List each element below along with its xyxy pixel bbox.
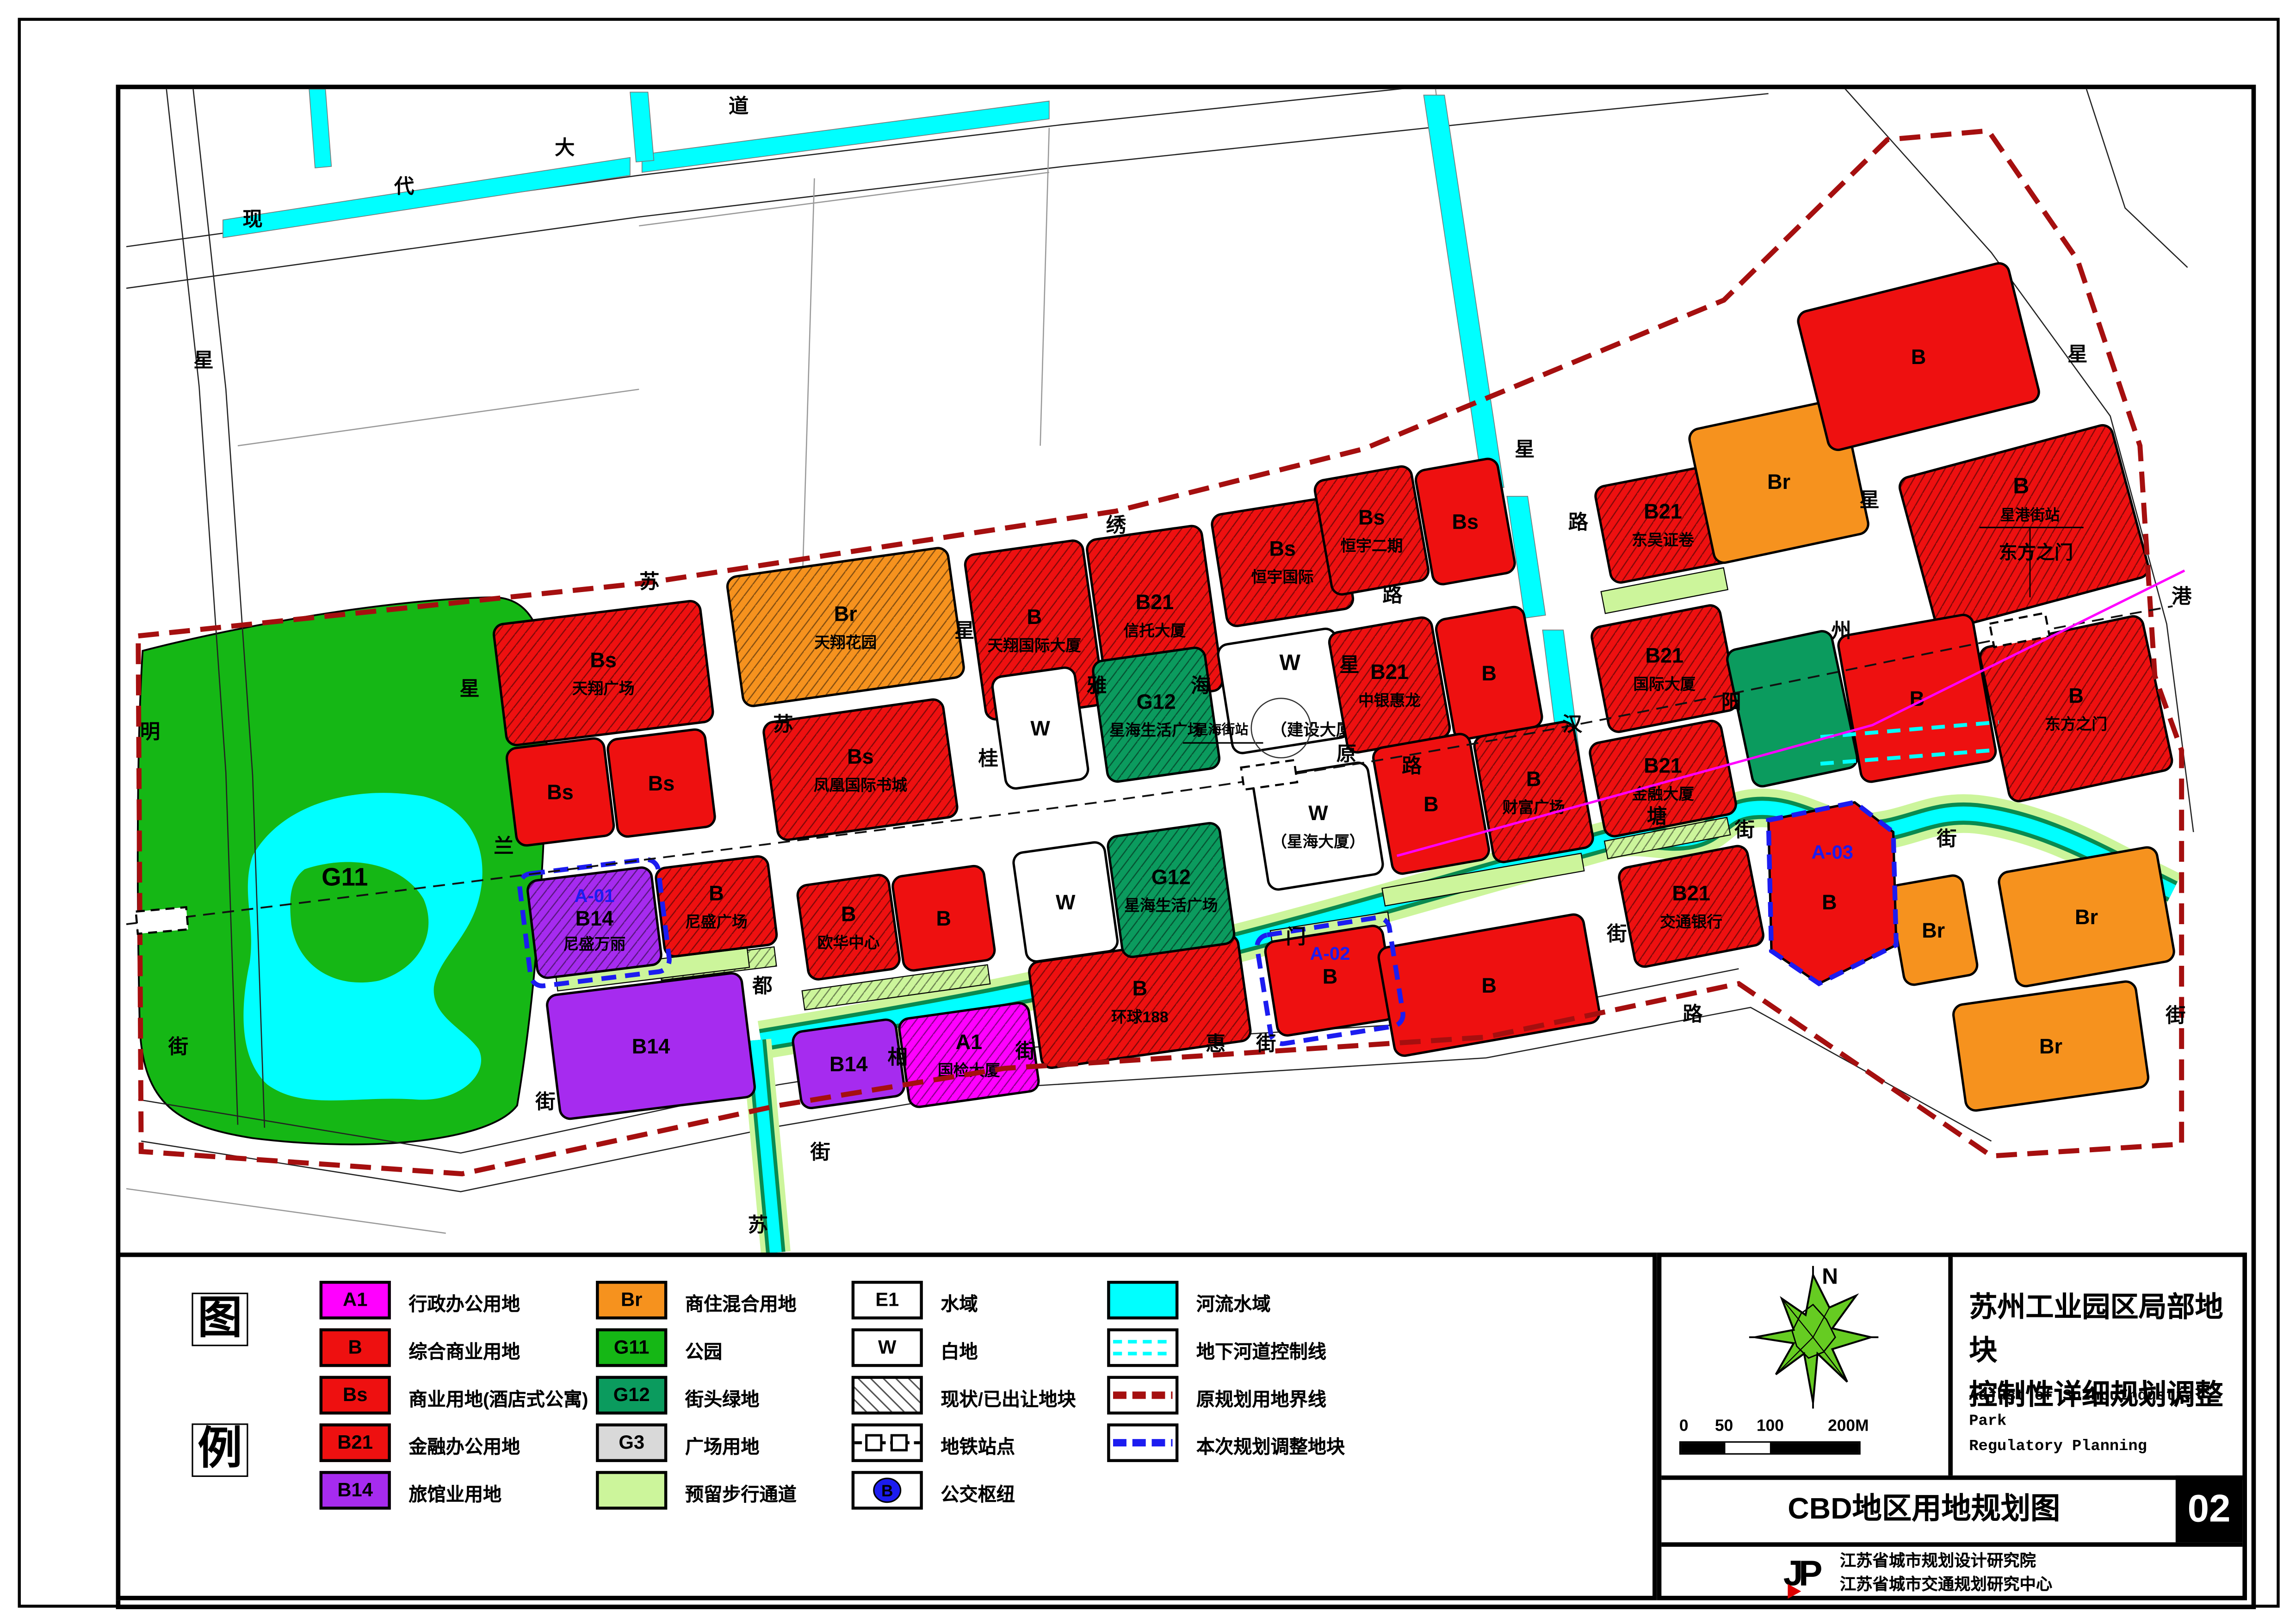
svg-text:Bs: Bs [547, 780, 574, 804]
parcel-label: B [1911, 345, 1926, 369]
sheet-title-en: Adjust of SuzhouIndustial Park Regulator… [1969, 1385, 2244, 1460]
parcel-b21-jiaotong [1617, 844, 1765, 968]
svg-text:W: W [1056, 890, 1076, 914]
parcel-tianxiang-plaza [493, 600, 714, 746]
svg-text:星海街站: 星海街站 [1195, 722, 1249, 737]
road-name-char: 街 [168, 1036, 188, 1058]
parcel-label: B [1481, 974, 1496, 997]
road-name-char: 星 [193, 349, 213, 371]
parcel-g12-lower [1107, 822, 1235, 958]
svg-text:Br: Br [2075, 905, 2098, 929]
svg-text:B: B [936, 907, 951, 930]
svg-text:东方之门: 东方之门 [1999, 542, 2073, 563]
road-name-char: 路 [1402, 755, 1422, 777]
road-name-char: 港 [2172, 586, 2192, 608]
svg-text:B: B [2013, 473, 2029, 498]
svg-text:A1: A1 [956, 1030, 983, 1054]
road-edge [126, 89, 1724, 247]
svg-text:天翔花园: 天翔花园 [814, 634, 877, 652]
svg-text:B: B [709, 882, 724, 905]
svg-text:东方之门: 东方之门 [2045, 715, 2107, 733]
svg-text:B21: B21 [1672, 882, 1710, 905]
north-compass: N [1743, 1260, 1884, 1422]
parcel-label: B14 [632, 1035, 670, 1058]
road-name-char: 州 [1831, 620, 1851, 642]
divider [1661, 1476, 2242, 1480]
svg-text:尼盛广场: 尼盛广场 [685, 913, 748, 931]
svg-text:Br: Br [2039, 1035, 2062, 1058]
svg-text:B: B [1027, 605, 1042, 629]
road-name-char: 明 [140, 721, 160, 743]
sheet-name: CBD地区用地规划图 [1788, 1484, 2060, 1527]
svg-text:B: B [841, 902, 856, 926]
svg-text:Bs: Bs [1452, 510, 1479, 534]
title-block: N 0 50 100 200M 苏州工业园区局部地块 控制性详细规划调整 Adj… [1657, 1253, 2247, 1600]
svg-text:天翔国际大厦: 天翔国际大厦 [988, 637, 1082, 655]
svg-text:东吴证卷: 东吴证卷 [1632, 531, 1694, 549]
parcel-label: Bs [648, 772, 675, 795]
svg-text:G12: G12 [1151, 865, 1191, 889]
svg-text:天翔广场: 天翔广场 [572, 680, 635, 698]
parcel-bs-hengyu2 [1313, 465, 1430, 596]
road-name-char: 雅 [1087, 675, 1107, 697]
parcel-label: Br [2039, 1035, 2062, 1058]
svg-text:Bs: Bs [1358, 506, 1385, 529]
road-name-char: 街 [535, 1091, 555, 1113]
road-name-char: 绣 [1106, 514, 1126, 537]
road-name-char: 星 [954, 620, 974, 642]
svg-text:B14: B14 [632, 1035, 670, 1058]
svg-text:B21: B21 [1646, 644, 1684, 667]
parcel-label: Bs [547, 780, 574, 804]
svg-text:欧华中心: 欧华中心 [817, 934, 880, 951]
river [630, 92, 654, 162]
river [223, 158, 630, 238]
metro-station [136, 907, 188, 934]
river [642, 101, 1049, 172]
svg-text:B: B [881, 1482, 893, 1500]
parcel-label: B [1481, 661, 1496, 685]
svg-text:星港街站: 星港街站 [2000, 506, 2060, 523]
road-name-char: 街 [1734, 819, 1755, 841]
svg-text:B: B [1423, 792, 1438, 816]
road-name-char: 都 [752, 975, 772, 997]
svg-text:B21: B21 [1644, 500, 1682, 523]
parcel-label: Bs [1452, 510, 1479, 534]
road-name-char: 路 [1568, 512, 1589, 534]
road-name-char: 路 [1683, 1003, 1703, 1025]
svg-text:财富广场: 财富广场 [1503, 798, 1565, 816]
jp-logo: JP [1783, 1554, 1818, 1596]
svg-text:B: B [2068, 684, 2083, 707]
svg-text:B: B [1481, 661, 1496, 685]
planning-sheet: Bs天翔广场BsBsA-01B14尼盛万丽B尼盛广场B14Br天翔花园Bs凤凰国… [0, 0, 2296, 1624]
svg-text:Bs: Bs [648, 772, 675, 795]
road-edge [803, 178, 815, 579]
svg-text:环球188: 环球188 [1111, 1008, 1169, 1026]
svg-text:Br: Br [1767, 470, 1790, 494]
divider [1661, 1542, 2242, 1547]
road-name-char: 街 [1256, 1033, 1276, 1055]
svg-text:交通银行: 交通银行 [1660, 913, 1722, 931]
parcel-g12-upper [1092, 647, 1220, 783]
legend-panel: 图 例 A1行政办公用地B综合商业用地Bs商业用地(酒店式公寓)B21金融办公用… [116, 1253, 1657, 1600]
svg-text:尼盛万丽: 尼盛万丽 [563, 936, 625, 953]
road-edge [2086, 89, 2187, 267]
road-name-char: 原 [1337, 743, 1356, 766]
svg-text:A-01: A-01 [574, 885, 614, 906]
road-name-char: 街 [1936, 828, 1956, 850]
road-edge [126, 1189, 446, 1233]
svg-text:星海生活广场: 星海生活广场 [1124, 897, 1218, 914]
road-name-char: 星 [2067, 344, 2087, 366]
road-name-char: 街 [1606, 923, 1627, 945]
parcel-br-tianxiang-garden [726, 547, 965, 707]
road-edge [1040, 128, 1049, 445]
road-name-char: 大 [555, 137, 575, 159]
parcel-b-ouhua [796, 874, 901, 981]
road-name-char: 苏 [639, 571, 659, 593]
road-edge [639, 173, 1049, 226]
svg-text:B: B [1481, 974, 1496, 997]
svg-text:Bs: Bs [847, 745, 874, 768]
svg-text:B21: B21 [1136, 590, 1174, 614]
road-name-char: 门 [1286, 926, 1306, 948]
road-name-char: 星 [1339, 654, 1359, 676]
svg-text:B21: B21 [1370, 660, 1409, 684]
svg-text:Br: Br [1922, 919, 1945, 942]
divider [1948, 1257, 1953, 1476]
parcel-label: W [1056, 890, 1076, 914]
road-name-char: 苏 [773, 713, 793, 735]
svg-text:B: B [1911, 345, 1926, 369]
svg-text:B: B [1526, 767, 1541, 790]
parcel-b21-guoji [1590, 604, 1739, 734]
parcel-label: Br [1767, 470, 1790, 494]
road-edge [238, 389, 639, 446]
road-name-char: 星 [1859, 489, 1879, 511]
river [1423, 95, 1504, 490]
sheet-number: 02 [2176, 1476, 2243, 1543]
river [309, 89, 331, 168]
parcel-label: B14 [829, 1052, 868, 1076]
parcel-label: W [1030, 716, 1050, 740]
road-name-char: 阳 [1721, 691, 1741, 713]
legend-title: 图 例 [192, 1293, 248, 1554]
road-name-char: 惠 [1206, 1033, 1225, 1055]
parcel-label: B [936, 907, 951, 930]
svg-text:A-02: A-02 [1310, 943, 1350, 964]
svg-text:恒宇国际: 恒宇国际 [1251, 568, 1314, 586]
parcel-label: Br [2075, 905, 2098, 929]
svg-text:星海生活广场: 星海生活广场 [1109, 722, 1203, 739]
road-name-char: 街 [810, 1142, 830, 1164]
svg-text:恒宇二期: 恒宇二期 [1341, 537, 1403, 555]
road-name-char: 街 [1015, 1040, 1035, 1062]
road-name-char: 相 [888, 1046, 908, 1068]
parcel-label: Br [1922, 919, 1945, 942]
svg-text:W: W [1308, 801, 1328, 825]
svg-text:Br: Br [834, 602, 857, 626]
svg-text:B: B [1323, 965, 1337, 988]
road-name-char: 海 [1191, 675, 1211, 697]
svg-text:W: W [1030, 716, 1050, 740]
road-name-char: 塘 [1647, 806, 1667, 828]
svg-text:信托大厦: 信托大厦 [1124, 622, 1186, 640]
svg-text:（星海大厦）: （星海大厦） [1271, 833, 1365, 851]
organizations: 江苏省城市规划设计研究院 江苏省城市交通规划研究中心 [1840, 1551, 2052, 1599]
road-name-char: 兰 [494, 835, 514, 858]
svg-text:N: N [1822, 1264, 1838, 1289]
svg-text:B14: B14 [576, 907, 613, 930]
svg-text:W: W [1280, 650, 1301, 675]
road-name-char: 现 [242, 208, 262, 230]
svg-text:B: B [1822, 890, 1837, 914]
svg-text:凤凰国际书城: 凤凰国际书城 [814, 777, 908, 794]
svg-text:B14: B14 [829, 1052, 868, 1076]
svg-text:中银惠龙: 中银惠龙 [1358, 692, 1421, 710]
road-name-char: 星 [1515, 438, 1535, 461]
scale-bar: 0 50 100 200M [1679, 1420, 1873, 1459]
svg-text:G12: G12 [1137, 690, 1176, 713]
road-name-char: 汉 [1562, 713, 1583, 735]
svg-text:Bs: Bs [590, 648, 616, 672]
park-label: G11 [322, 863, 368, 891]
parcel-b-caifu [1473, 720, 1595, 864]
zone-label-a03: A-03 [1812, 841, 1854, 863]
svg-text:B: B [1133, 976, 1147, 1000]
parcel-label: B [1423, 792, 1438, 816]
road-name-char: 桂 [978, 747, 998, 770]
road-name-char: 路 [1382, 584, 1403, 606]
road-name-char: 苏 [748, 1214, 768, 1236]
svg-text:国际大厦: 国际大厦 [1633, 676, 1696, 693]
svg-text:Bs: Bs [1269, 537, 1296, 560]
parcel-nisheng-plaza [655, 855, 778, 957]
road-name-char: 道 [729, 95, 749, 117]
road-name-char: 街 [2165, 1005, 2185, 1027]
parcel-b21-zhongyin [1328, 616, 1451, 754]
svg-text:B21: B21 [1644, 753, 1682, 777]
road-name-char: 代 [394, 176, 415, 198]
road-name-char: 星 [459, 678, 479, 700]
